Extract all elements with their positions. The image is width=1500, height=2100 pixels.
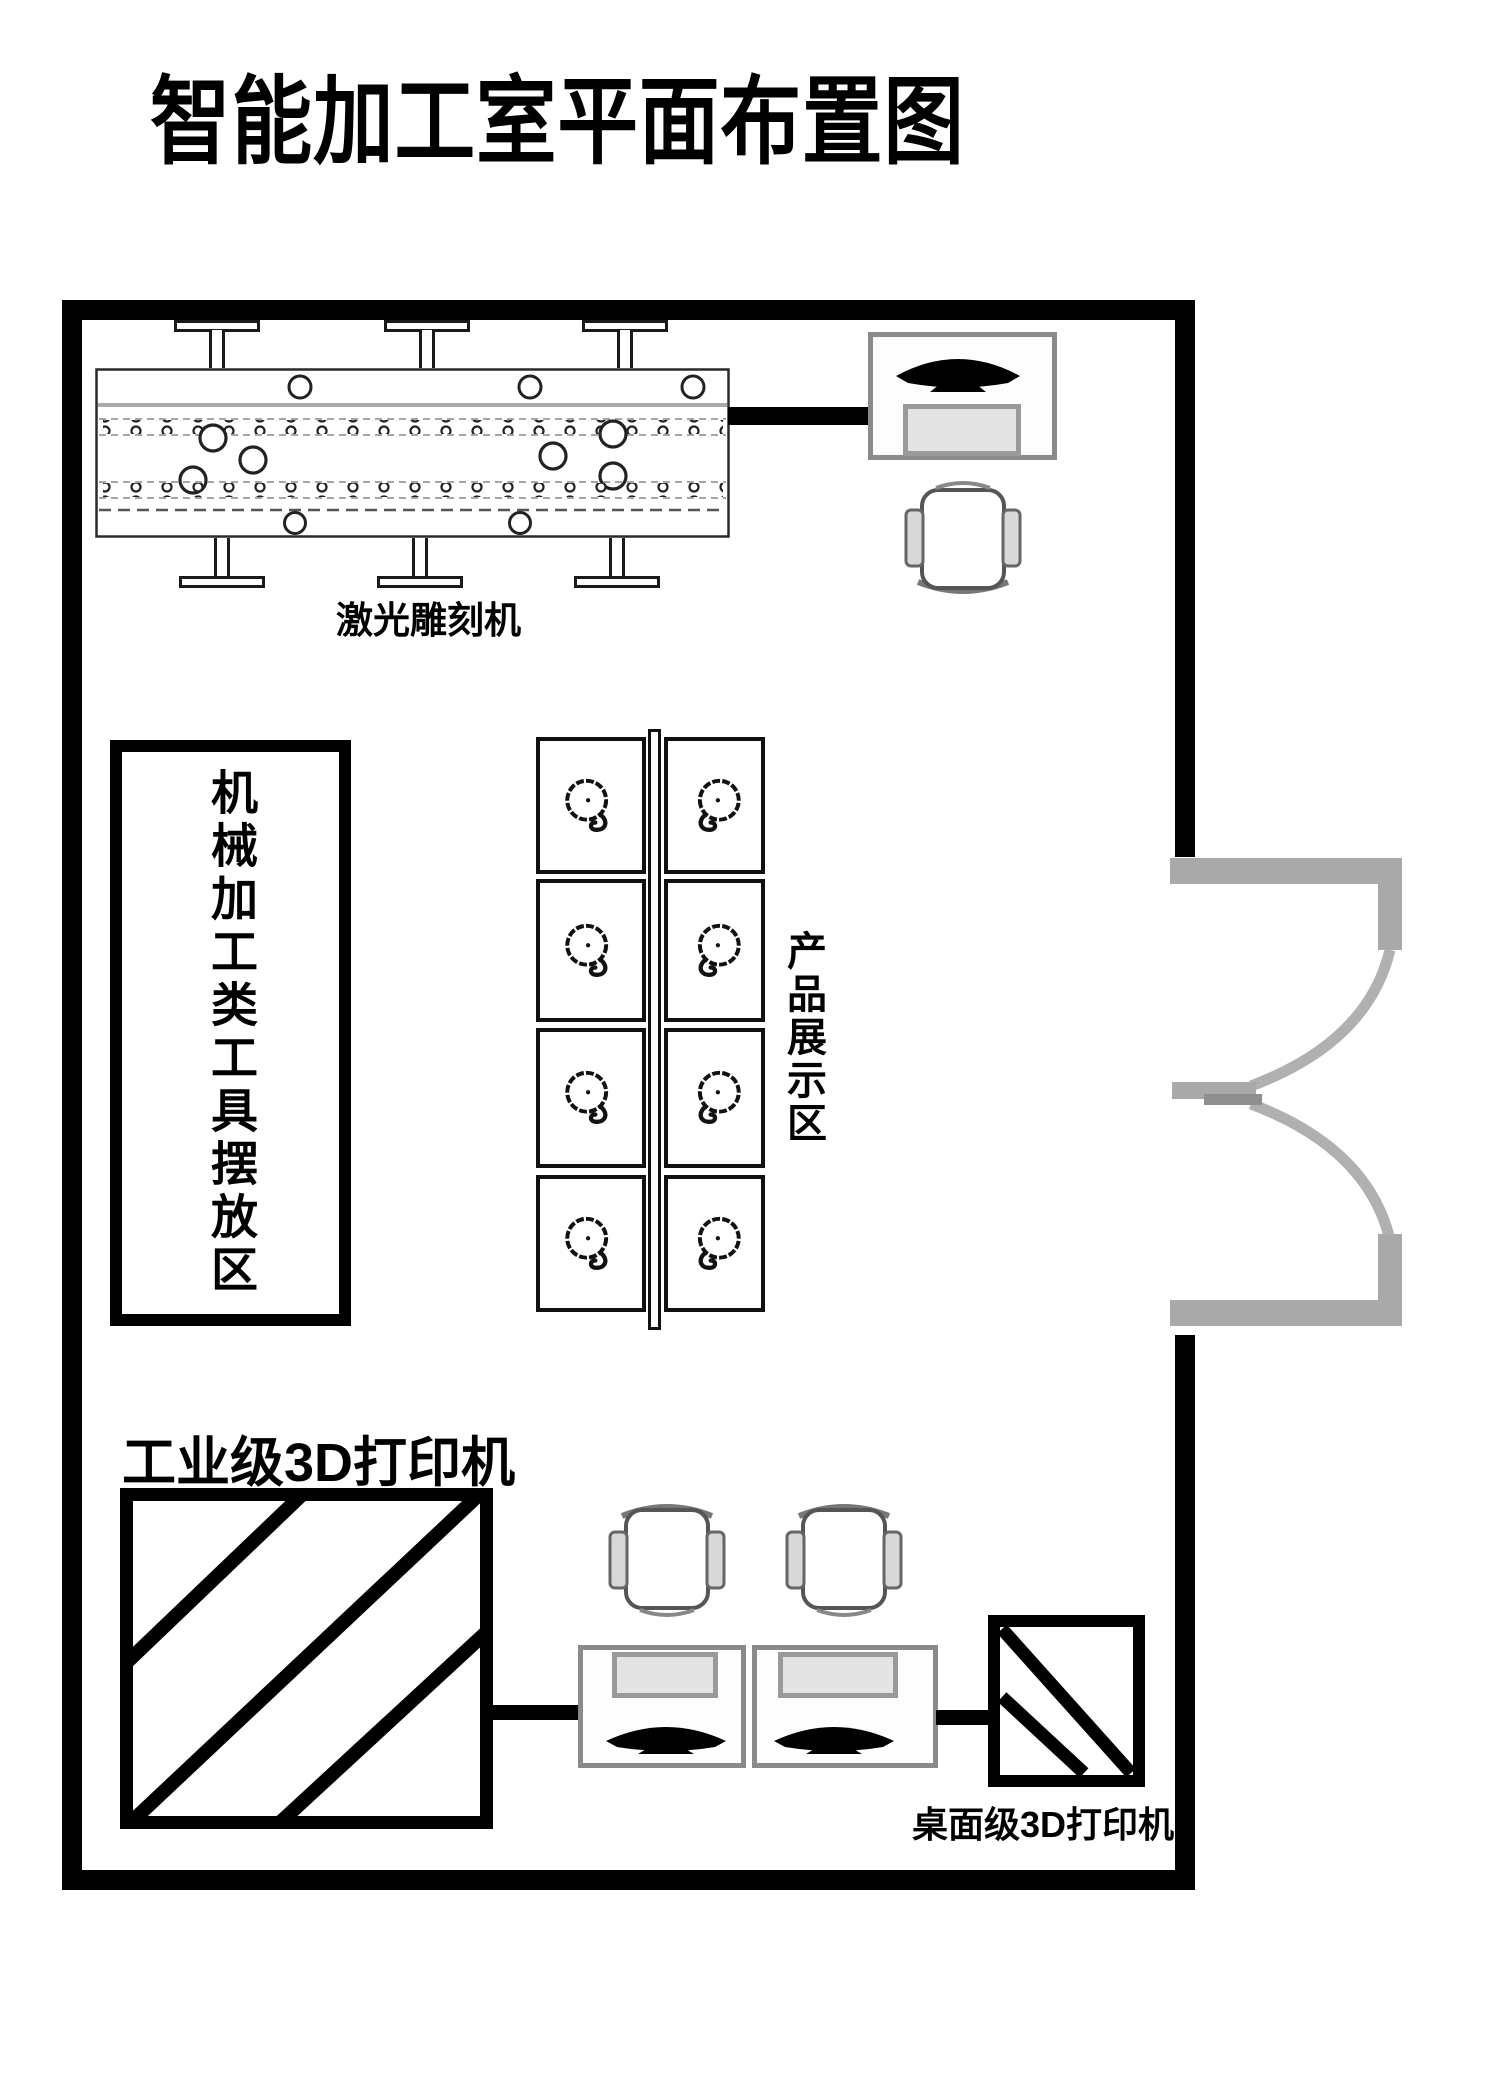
machine-support — [377, 576, 463, 588]
connector-line — [490, 1705, 580, 1720]
office-chair-icon — [779, 1498, 909, 1622]
connector-line — [728, 407, 870, 425]
floor-plan: 智能加工室平面布置图 — [0, 0, 1500, 2100]
door-jamb-bottom — [1378, 1234, 1402, 1300]
machine-support — [179, 576, 265, 588]
display-cell — [664, 1175, 765, 1312]
page-title: 智能加工室平面布置图 — [150, 44, 965, 183]
laser-engraver-machine-icon — [95, 368, 730, 538]
office-chair-icon — [602, 1498, 732, 1622]
desktop-printer-label: 桌面级3D打印机 — [912, 1796, 1174, 1848]
display-area-label: 产品展示区 — [783, 930, 823, 1145]
display-center-rail — [648, 729, 661, 1330]
monitor-icon — [772, 1722, 896, 1754]
tools-area-box: 机械加工类工具摆放区 — [110, 740, 351, 1326]
machine-support — [419, 330, 435, 368]
machine-support — [412, 538, 428, 578]
desktop-3d-printer — [988, 1615, 1145, 1787]
display-cell — [536, 1028, 646, 1168]
display-cell — [536, 737, 646, 874]
machine-support — [209, 330, 225, 368]
tools-area-label: 机械加工类工具摆放区 — [207, 768, 254, 1298]
industrial-printer-label: 工业级3D打印机 — [122, 1418, 515, 1497]
rotating-product-icon — [679, 766, 751, 846]
monitor-icon — [893, 352, 1023, 392]
laser-engraver-label: 激光雕刻机 — [336, 590, 521, 644]
rotating-product-icon — [555, 1058, 627, 1138]
monitor-icon — [604, 1722, 728, 1754]
rotating-product-icon — [679, 1204, 751, 1284]
rotating-product-icon — [555, 1204, 627, 1284]
office-chair-icon — [898, 476, 1028, 600]
machine-support — [574, 576, 660, 588]
display-cell — [664, 879, 765, 1022]
door-leaf-bottom — [1170, 1300, 1402, 1326]
keyboard-icon — [903, 404, 1021, 456]
machine-support — [609, 538, 625, 578]
machine-support — [214, 538, 230, 578]
connector-line — [936, 1710, 990, 1725]
industrial-3d-printer — [120, 1488, 493, 1829]
door-leaf-top — [1170, 858, 1402, 884]
display-cell — [536, 879, 646, 1022]
door-meeting-bar — [1204, 1094, 1262, 1105]
rotating-product-icon — [679, 1058, 751, 1138]
rotating-product-icon — [555, 911, 627, 991]
keyboard-icon — [778, 1652, 898, 1698]
rotating-product-icon — [555, 766, 627, 846]
display-cell — [664, 1028, 765, 1168]
keyboard-icon — [612, 1652, 718, 1698]
display-cell — [664, 737, 765, 874]
rotating-product-icon — [679, 911, 751, 991]
display-cell — [536, 1175, 646, 1312]
machine-support — [617, 330, 633, 368]
